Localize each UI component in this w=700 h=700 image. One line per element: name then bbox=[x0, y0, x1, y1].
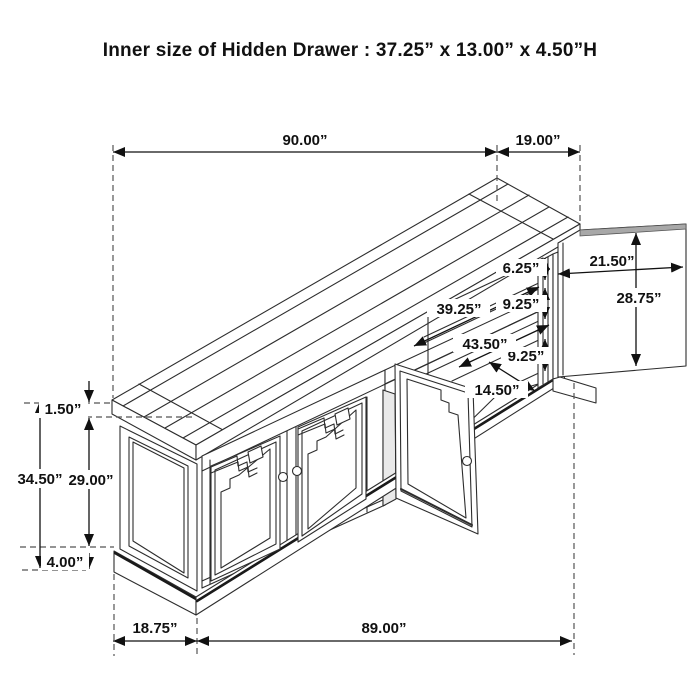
dim-label-middle-opening: 9.25” bbox=[503, 296, 540, 313]
dim-label-interior-depth: 14.50” bbox=[474, 382, 519, 399]
dim-label-side-height: 34.50” bbox=[17, 471, 62, 488]
dim-label-body-width: 89.00” bbox=[361, 620, 406, 637]
furniture-diagram-canvas: 90.00” 19.00” 18.75” 89.00” 34.50” 1.50”… bbox=[0, 0, 700, 700]
dim-label-top-thickness: 1.50” bbox=[45, 401, 82, 418]
dim-label-body-depth: 18.75” bbox=[132, 620, 177, 637]
dim-label-top-width: 90.00” bbox=[282, 132, 327, 149]
dim-label-interior-width-back: 43.50” bbox=[462, 336, 507, 353]
sideboard-drawing bbox=[112, 178, 686, 615]
dim-label-top-opening: 6.25” bbox=[503, 260, 540, 277]
dim-label-base-height: 4.00” bbox=[47, 554, 84, 571]
product-dimension-diagram: Inner size of Hidden Drawer : 37.25” x 1… bbox=[0, 0, 700, 700]
dim-label-door-opening-height: 29.00” bbox=[68, 472, 113, 489]
right-end-wall bbox=[553, 252, 558, 379]
dim-label-top-depth: 19.00” bbox=[515, 132, 560, 149]
dim-label-side-door-height: 28.75” bbox=[616, 290, 661, 307]
door-2-knob bbox=[293, 467, 302, 476]
door-1-knob bbox=[279, 473, 288, 482]
door-3-knob bbox=[463, 457, 472, 466]
right-base-stub bbox=[553, 377, 596, 403]
dim-label-side-door-width: 21.50” bbox=[589, 253, 634, 270]
dim-label-interior-width-front: 39.25” bbox=[436, 301, 481, 318]
